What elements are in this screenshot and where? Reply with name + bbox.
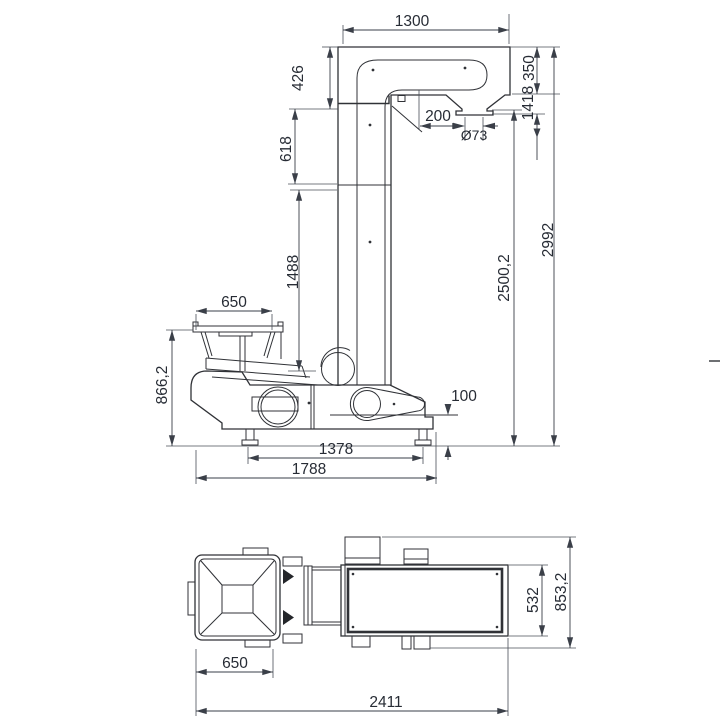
technical-drawing-page: 1300 426 618 1488 650 866,2 350 1418 250… xyxy=(0,0,720,722)
hopper-wall xyxy=(267,332,275,358)
foot-right xyxy=(415,429,431,445)
body-outer xyxy=(341,565,508,636)
top-view: 532 853,2 650 2411 xyxy=(188,537,576,716)
dim-base-clearance: 100 xyxy=(451,388,477,405)
dim-overall-length: 2411 xyxy=(369,694,402,711)
dim-arm-depth: 350 xyxy=(521,55,538,81)
dim-hopper-width: 650 xyxy=(221,294,247,311)
hopper-top-view xyxy=(188,548,280,647)
dim-hopper-height: 866,2 xyxy=(154,366,171,405)
rivet-dot xyxy=(393,403,396,406)
hopper-tab-left xyxy=(188,582,195,615)
arm-column-outline xyxy=(338,47,510,385)
base-outline xyxy=(191,371,433,429)
chute-bottom xyxy=(206,369,310,377)
z-conveyor-drawing: 1300 426 618 1488 650 866,2 350 1418 250… xyxy=(0,0,720,722)
funnel-edge xyxy=(253,561,274,585)
rivet-dot xyxy=(369,124,372,127)
foot-left xyxy=(242,429,258,445)
hopper-tab-bottom xyxy=(245,640,270,647)
chute-top xyxy=(206,358,302,366)
drive-drum-inner xyxy=(261,390,295,424)
dim-total-height: 2992 xyxy=(540,223,557,257)
bottom-tab xyxy=(352,636,370,647)
hopper-lid xyxy=(193,326,283,332)
dim-arm-width: 1300 xyxy=(395,13,430,30)
hopper-tab-top xyxy=(243,548,268,555)
hopper-lid-cap xyxy=(193,322,198,326)
bottom-tab xyxy=(402,636,411,649)
dim-outlet-diameter: Ø73 xyxy=(461,127,488,143)
hopper-underplate xyxy=(219,332,252,336)
dim-outlet-drop: 1418 xyxy=(520,86,537,120)
connector-tab xyxy=(283,557,302,566)
connector-tab xyxy=(283,634,302,643)
dim-overall-width: 853,2 xyxy=(553,573,570,612)
foot-stem xyxy=(419,429,427,440)
body-top-view xyxy=(341,537,508,649)
top-port-small xyxy=(404,549,428,564)
dim-column-upper: 618 xyxy=(278,136,295,162)
body-inner xyxy=(348,569,502,632)
drive-drum xyxy=(258,387,298,427)
dim-outlet-offset: 200 xyxy=(425,108,451,125)
funnel-edge xyxy=(201,613,222,634)
foot-pad xyxy=(415,440,431,445)
belt-channel xyxy=(357,60,487,385)
funnel-edge xyxy=(253,613,274,634)
arm-notch xyxy=(398,96,405,102)
dim-arm-front-height: 426 xyxy=(290,65,307,91)
top-view-dimensions: 532 853,2 650 2411 xyxy=(196,537,576,716)
rivet-dot xyxy=(308,402,311,405)
chute-bottom2 xyxy=(212,377,318,385)
top-port-large xyxy=(345,537,380,564)
corner-dot xyxy=(496,626,499,629)
hopper-wall xyxy=(264,332,271,356)
connector-top-view xyxy=(283,557,341,643)
foot-pad xyxy=(242,440,258,445)
arm-brace-line xyxy=(392,106,422,132)
hopper-wall xyxy=(205,332,212,356)
arm-joint-line xyxy=(338,96,389,104)
belt-loop xyxy=(350,388,424,421)
brace-wedge xyxy=(283,610,294,625)
dim-column-lower: 1488 xyxy=(285,255,302,289)
dim-body-width: 532 xyxy=(525,587,542,613)
drum-housing xyxy=(252,397,298,411)
funnel-edge xyxy=(201,561,222,585)
dim-discharge-height: 2500,2 xyxy=(496,254,513,301)
belt-pulley xyxy=(354,391,381,418)
hopper-lid-cap xyxy=(278,322,283,326)
dim-base-length: 1788 xyxy=(292,461,326,478)
corner-dot xyxy=(352,573,355,576)
hopper-wall xyxy=(201,332,209,358)
bottom-tab xyxy=(414,636,430,649)
side-view: 1300 426 618 1488 650 866,2 350 1418 250… xyxy=(154,13,560,484)
rivet-dot xyxy=(464,67,467,70)
pulley-bracket-arc xyxy=(321,348,350,367)
foot-stem xyxy=(246,429,254,440)
dim-hopper-width-top: 650 xyxy=(222,655,248,672)
corner-dot xyxy=(496,573,499,576)
rivet-dot xyxy=(369,241,372,244)
brace-wedge xyxy=(283,569,294,584)
dim-feet-span: 1378 xyxy=(319,441,353,458)
corner-dot xyxy=(352,626,355,629)
machine-side-outline xyxy=(321,47,510,386)
rivet-dot xyxy=(372,69,375,72)
hopper-throat xyxy=(222,585,253,613)
base-unit xyxy=(191,371,458,445)
